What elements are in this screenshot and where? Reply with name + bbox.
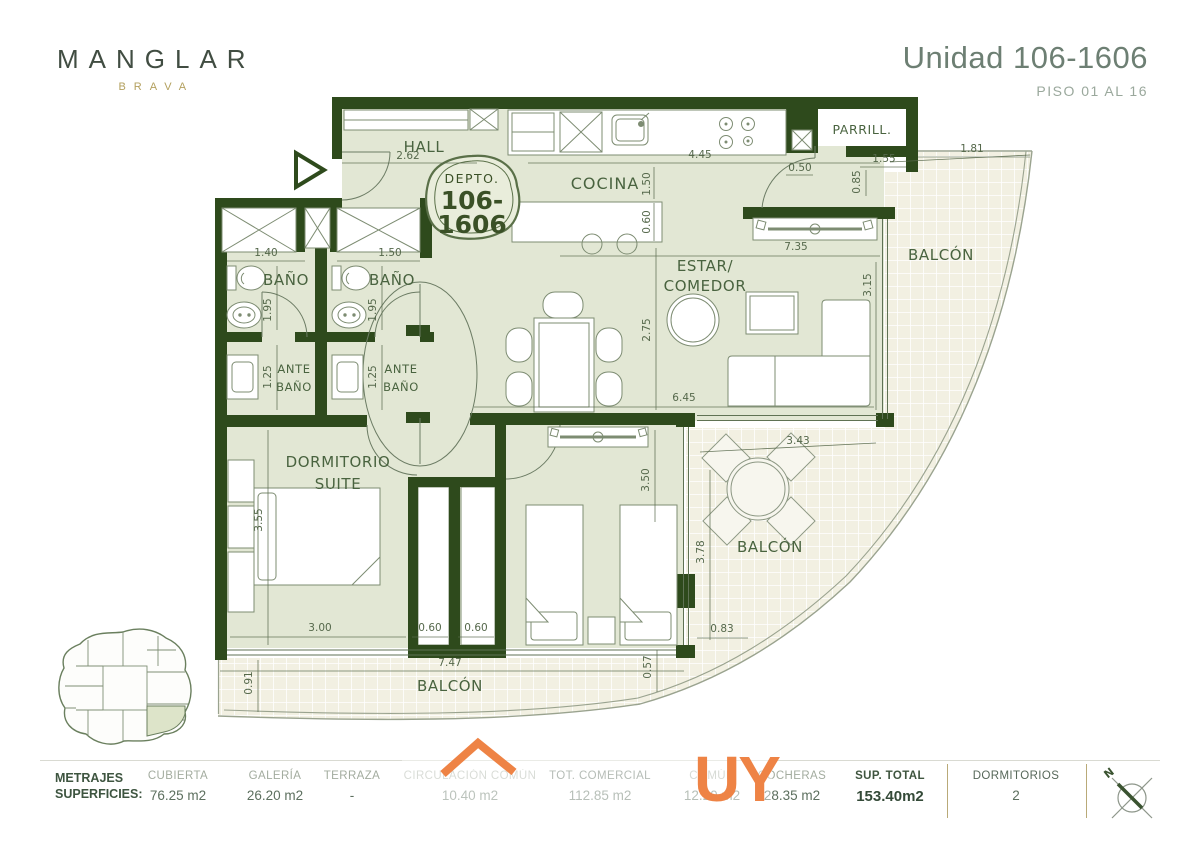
dim-balcon-se-ancho: 3.43 xyxy=(786,435,809,447)
room-label-suite-1: DORMITORIO xyxy=(286,453,391,471)
room-label-bano-der: BAÑO xyxy=(369,270,415,289)
dim-balcon-este: 1.81 xyxy=(960,143,983,155)
metric-dormitorios: DORMITORIOS 2 xyxy=(956,770,1076,803)
dim-parrillero-ancho: 1.55 xyxy=(872,153,895,165)
dim-bano-der-ancho: 1.50 xyxy=(378,247,401,259)
metric-label: CUBIERTA xyxy=(128,770,228,782)
room-label-estar-1: ESTAR/ xyxy=(677,257,734,275)
room-label-antebano-izq-1: ANTE xyxy=(277,362,310,376)
dim-estar-largo: 6.45 xyxy=(672,392,695,404)
dim-antebano-der: 1.25 xyxy=(367,365,379,388)
room-label-balcon-sureste: BALCÓN xyxy=(737,537,803,556)
footer-divider xyxy=(1086,764,1087,818)
dim-parrillero-fondo: 0.85 xyxy=(851,170,863,193)
metric-terraza: TERRAZA - xyxy=(307,770,397,803)
room-label-estar-2: COMEDOR xyxy=(664,277,747,295)
metric-value: 153.40m2 xyxy=(840,788,940,805)
room-label-antebano-der-1: ANTE xyxy=(384,362,417,376)
dim-placard-izq: 0.60 xyxy=(418,622,441,634)
dim-balcon-sur-der: 0.57 xyxy=(642,655,654,678)
dim-hall: 2.62 xyxy=(396,150,419,162)
dim-balcon-sur-izq: 0.91 xyxy=(243,671,255,694)
room-label-balcon-este: BALCÓN xyxy=(908,245,974,264)
compass-icon: N xyxy=(1098,764,1162,824)
badge-number-2: 1606 xyxy=(437,210,507,239)
room-label-antebano-der-2: BAÑO xyxy=(383,379,419,394)
metric-label: TERRAZA xyxy=(307,770,397,782)
metric-value: 2 xyxy=(956,788,1076,803)
unit-badge: DEPTO. 106- 1606 xyxy=(426,156,519,239)
dim-bano-der-fondo: 1.95 xyxy=(367,298,379,321)
dim-balcon-sur-ancho: 7.47 xyxy=(438,657,461,669)
dim-isla: 0.60 xyxy=(641,210,653,233)
watermark-text: UY xyxy=(694,742,779,816)
badge-prefix: DEPTO. xyxy=(444,171,499,186)
metric-sup-total: SUP. TOTAL 153.40m2 xyxy=(840,770,940,805)
metric-label: DORMITORIOS xyxy=(956,770,1076,782)
room-label-bano-izq: BAÑO xyxy=(263,270,309,289)
dim-parrillero-paso: 0.50 xyxy=(788,162,811,174)
plan-sheet: MANGLAR BRAVA Unidad 106-1606 PISO 01 AL… xyxy=(0,0,1200,848)
room-label-cocina: COCINA xyxy=(571,174,640,193)
dim-bano-izq-fondo: 1.95 xyxy=(262,298,274,321)
room-label-balcon-sur: BALCÓN xyxy=(417,676,483,695)
dim-dorm2-fondo: 3.50 xyxy=(640,468,652,491)
footer-divider xyxy=(947,764,948,818)
dim-estar-fondo: 3.15 xyxy=(862,273,874,296)
room-label-parrillero: PARRILL. xyxy=(832,122,891,137)
key-plan-icon xyxy=(48,620,193,758)
metric-label: SUP. TOTAL xyxy=(840,770,940,782)
metric-cubierta: CUBIERTA 76.25 m2 xyxy=(128,770,228,803)
metric-value: 76.25 m2 xyxy=(128,788,228,803)
dim-estar-ancho: 7.35 xyxy=(784,241,807,253)
dim-cocina-ancho: 4.45 xyxy=(688,149,711,161)
dim-antebano-izq: 1.25 xyxy=(262,365,274,388)
dim-cocina-fondo: 1.50 xyxy=(641,172,653,195)
dim-comedor-fondo: 2.75 xyxy=(641,318,653,341)
room-label-antebano-izq-2: BAÑO xyxy=(276,379,312,394)
dim-balcon-se-paso: 0.83 xyxy=(710,623,733,635)
dim-bano-izq-ancho: 1.40 xyxy=(254,247,277,259)
dim-suite-fondo: 3.55 xyxy=(253,508,265,531)
compass-north-label: N xyxy=(1101,765,1116,781)
watermark-roof-icon xyxy=(438,736,520,778)
room-label-suite-2: SUITE xyxy=(315,475,362,493)
dim-suite-ancho: 3.00 xyxy=(308,622,331,634)
dim-placard-der: 0.60 xyxy=(464,622,487,634)
dim-balcon-se-fondo: 3.78 xyxy=(695,540,707,563)
entry-arrow-icon xyxy=(296,153,324,187)
metric-value: - xyxy=(307,788,397,803)
